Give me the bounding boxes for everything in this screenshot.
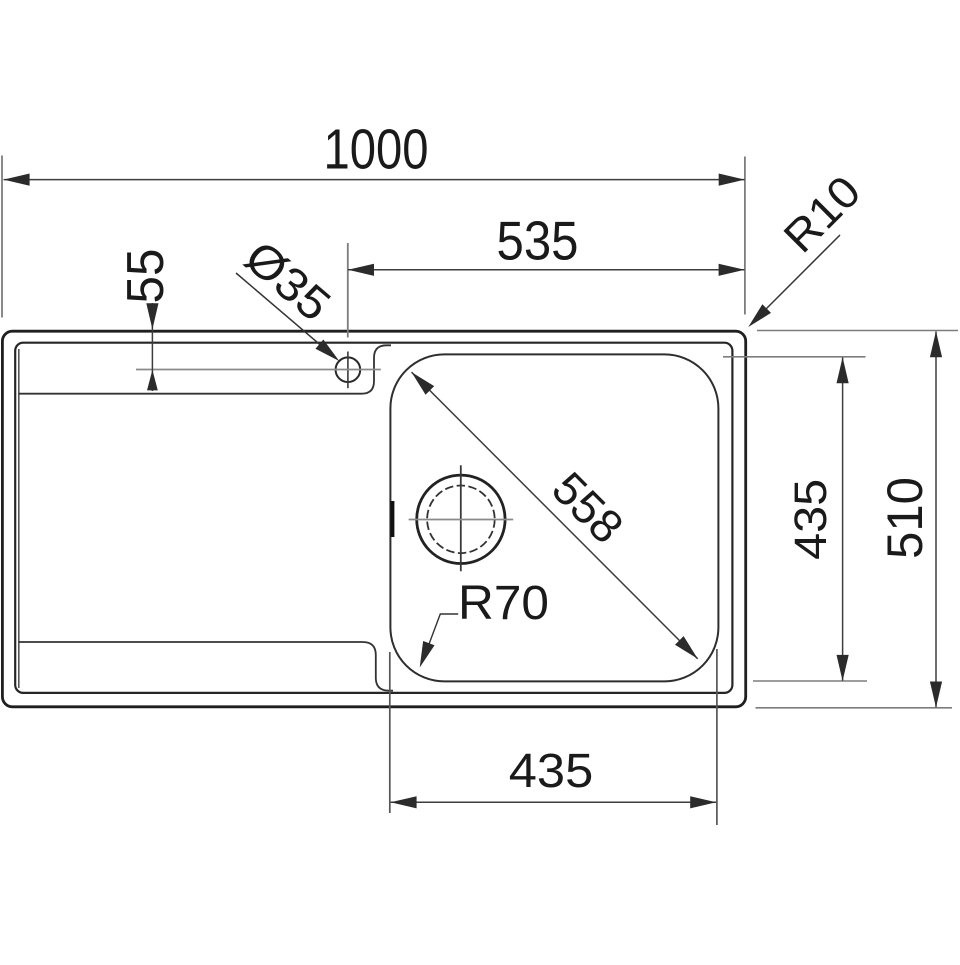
svg-text:535: 535	[497, 210, 579, 272]
svg-text:435: 435	[785, 479, 836, 560]
svg-text:1000: 1000	[324, 118, 429, 181]
svg-text:R70: R70	[458, 576, 549, 630]
svg-text:510: 510	[877, 477, 933, 559]
svg-text:435: 435	[509, 745, 594, 798]
svg-text:55: 55	[117, 249, 175, 304]
